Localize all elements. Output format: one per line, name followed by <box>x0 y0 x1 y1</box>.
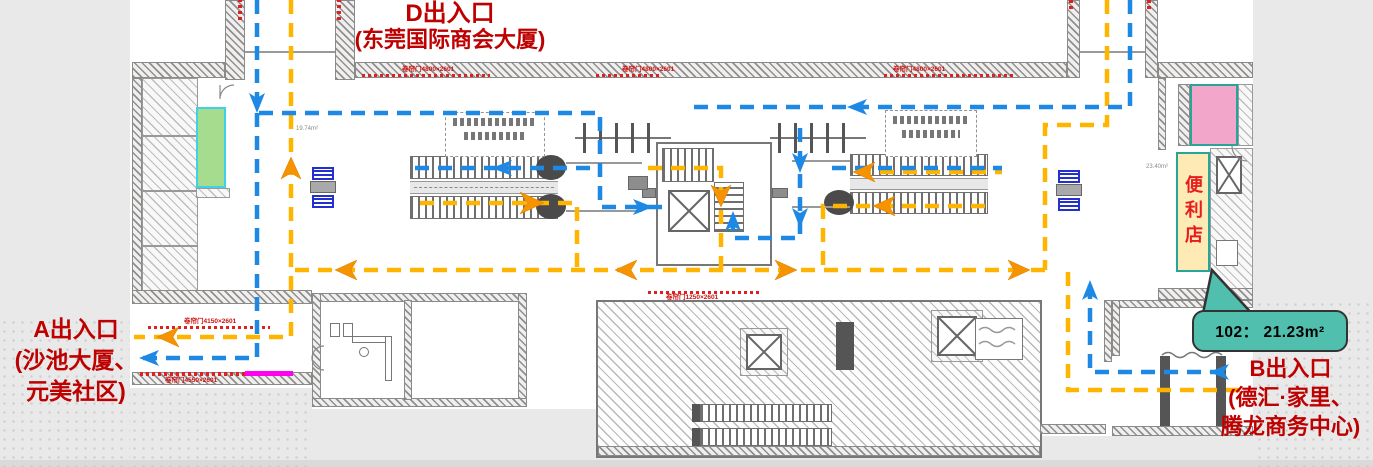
exit-a-line3: 元美社区) <box>0 376 152 407</box>
exit-b-label: B出入口 (德汇·家里、 腾龙商务中心) <box>1208 354 1373 441</box>
exit-b-title: B出入口 <box>1208 354 1373 383</box>
exit-a-label: A出入口 (沙池大厦、 元美社区) <box>0 314 152 407</box>
exit-b-line3: 腾龙商务中心) <box>1208 412 1373 441</box>
room-area-text: 102： 21.23m² <box>1215 320 1324 342</box>
exit-d-subtitle: (东莞国际商会大厦) <box>300 27 600 53</box>
exit-d-label: D出入口 (东莞国际商会大厦) <box>300 0 600 53</box>
flow-lines-overlay <box>0 0 1373 467</box>
station-floor-plan: 19.74m² <box>0 0 1373 467</box>
exit-a-title: A出入口 <box>0 314 152 345</box>
exit-b-line2: (德汇·家里、 <box>1208 383 1373 412</box>
exit-a-line2: (沙池大厦、 <box>0 345 152 376</box>
exit-d-title: D出入口 <box>300 0 600 27</box>
room-area-callout: 102： 21.23m² <box>1192 310 1348 352</box>
